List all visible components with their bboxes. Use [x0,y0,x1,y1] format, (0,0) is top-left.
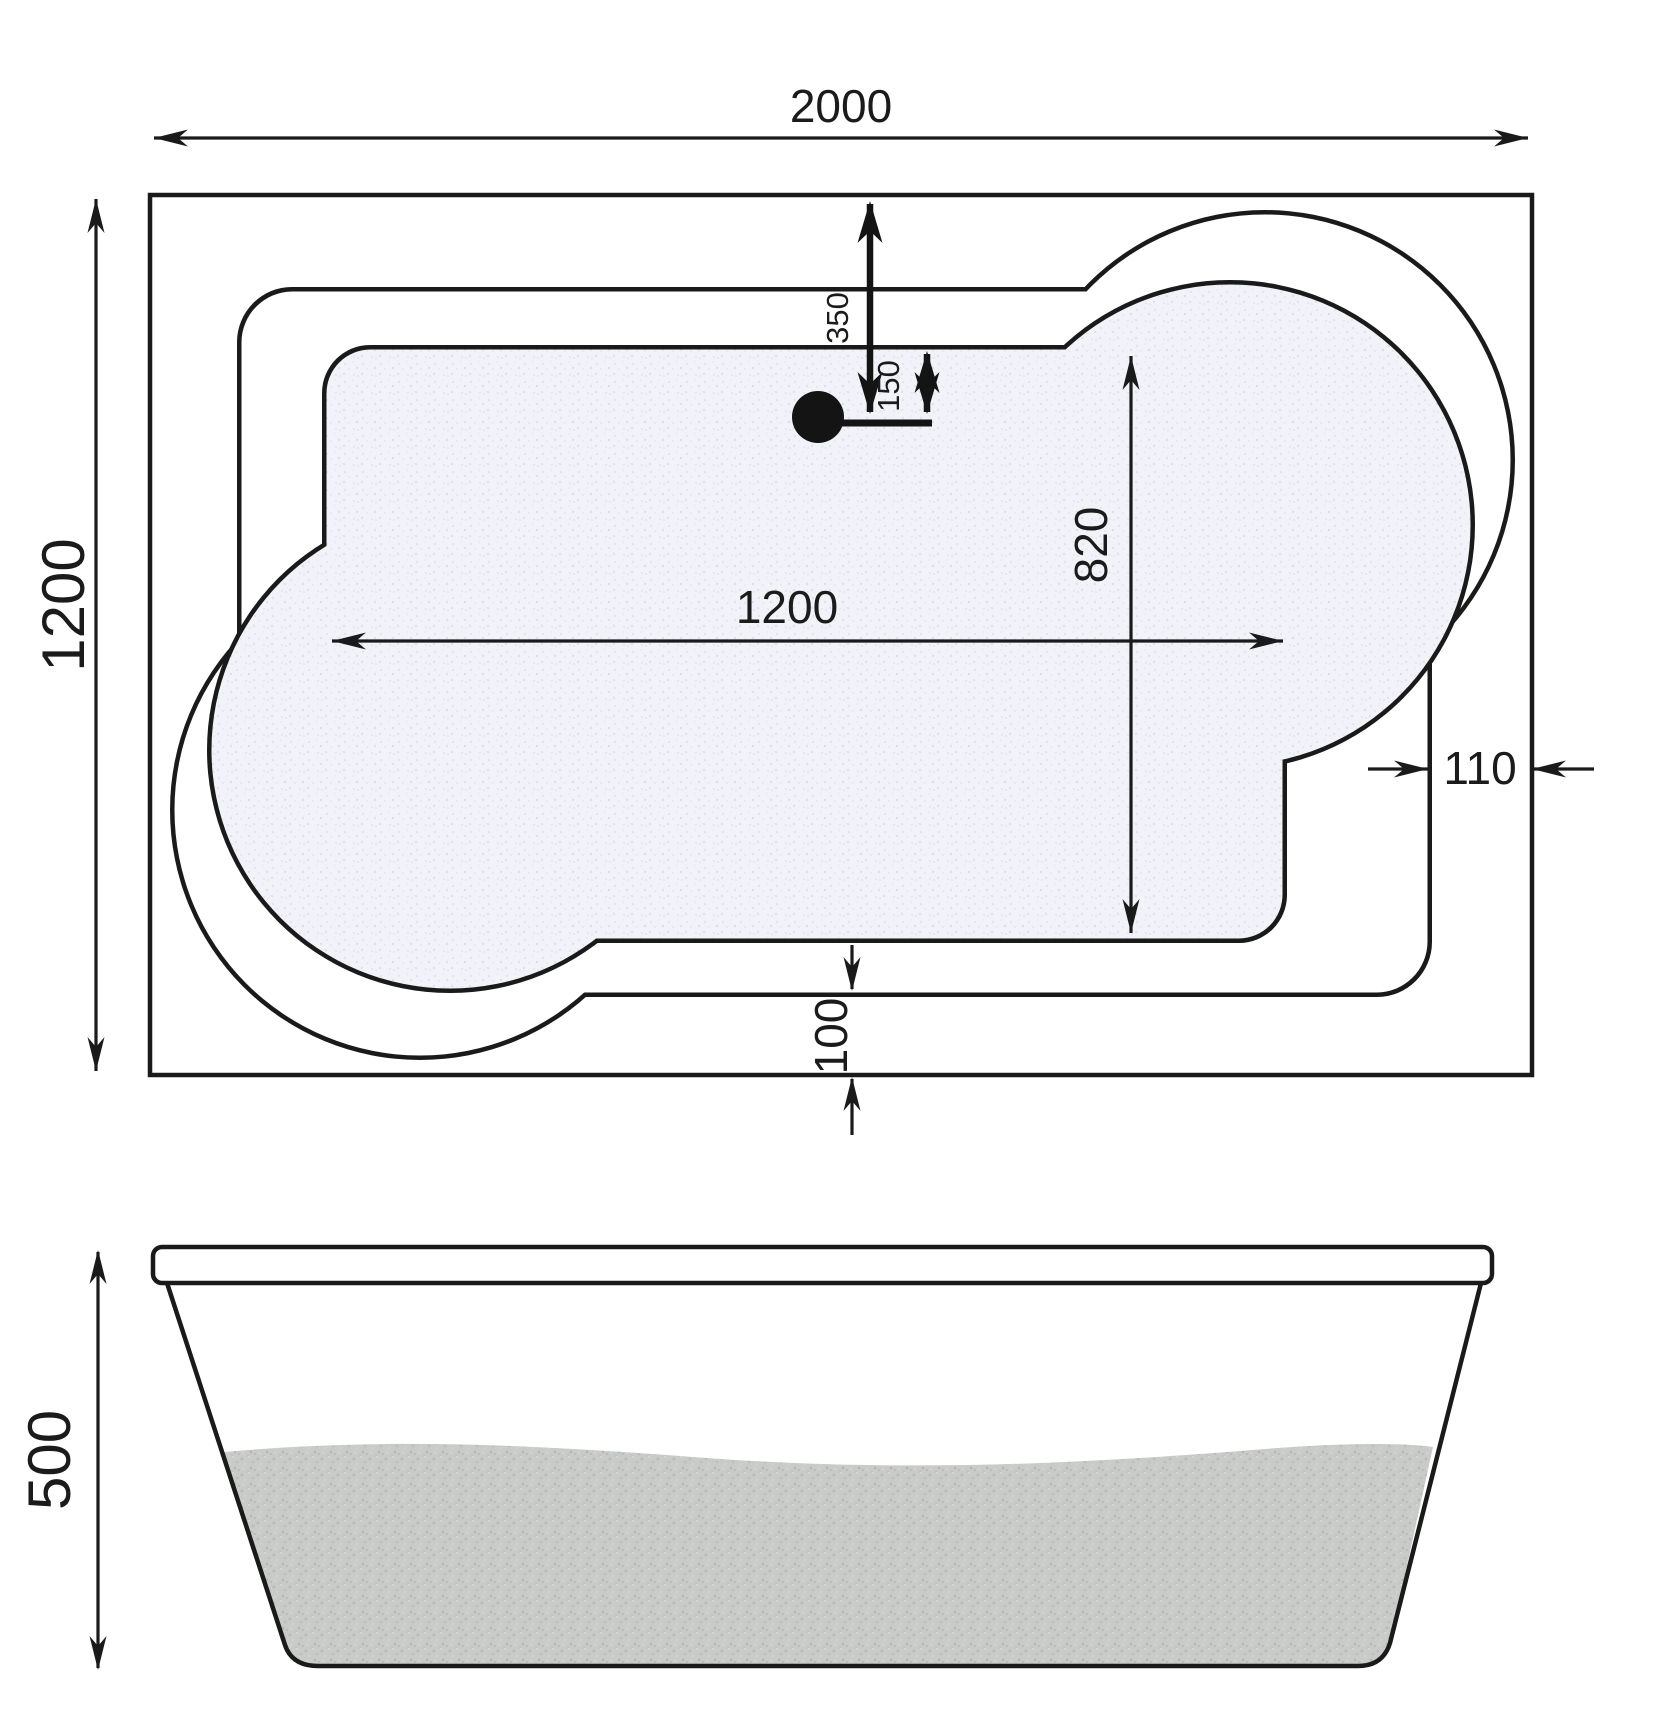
bathtub-dimension-drawing: 2000 1200 1200 820 350 [0,0,1678,1731]
side-view: 500 [16,1247,1492,1670]
dim-overall-depth: 1200 [30,199,105,1071]
dim-overall-width: 2000 [154,80,1528,147]
tub-rim-bar [153,1247,1492,1283]
dim-label-overall-depth: 1200 [30,538,97,671]
dim-label-drain-offset-edge: 350 [820,292,855,344]
dim-label-drain-offset-basin: 150 [871,360,906,412]
dim-label-basin-width: 820 [1065,507,1117,584]
top-view: 2000 1200 1200 820 350 [30,80,1594,1135]
dim-label-basin-length: 1200 [736,581,838,633]
tub-basin [207,280,1475,993]
dim-label-height: 500 [16,1410,83,1510]
dim-height: 500 [16,1250,107,1670]
drain-dot [792,391,844,443]
dim-label-rim-gap-right: 110 [1443,742,1516,794]
dim-label-overall-width: 2000 [790,80,892,132]
dim-label-rim-gap-bottom: 100 [805,998,857,1075]
water-fill [224,1444,1433,1666]
drawing-canvas: 2000 1200 1200 820 350 [0,0,1678,1731]
